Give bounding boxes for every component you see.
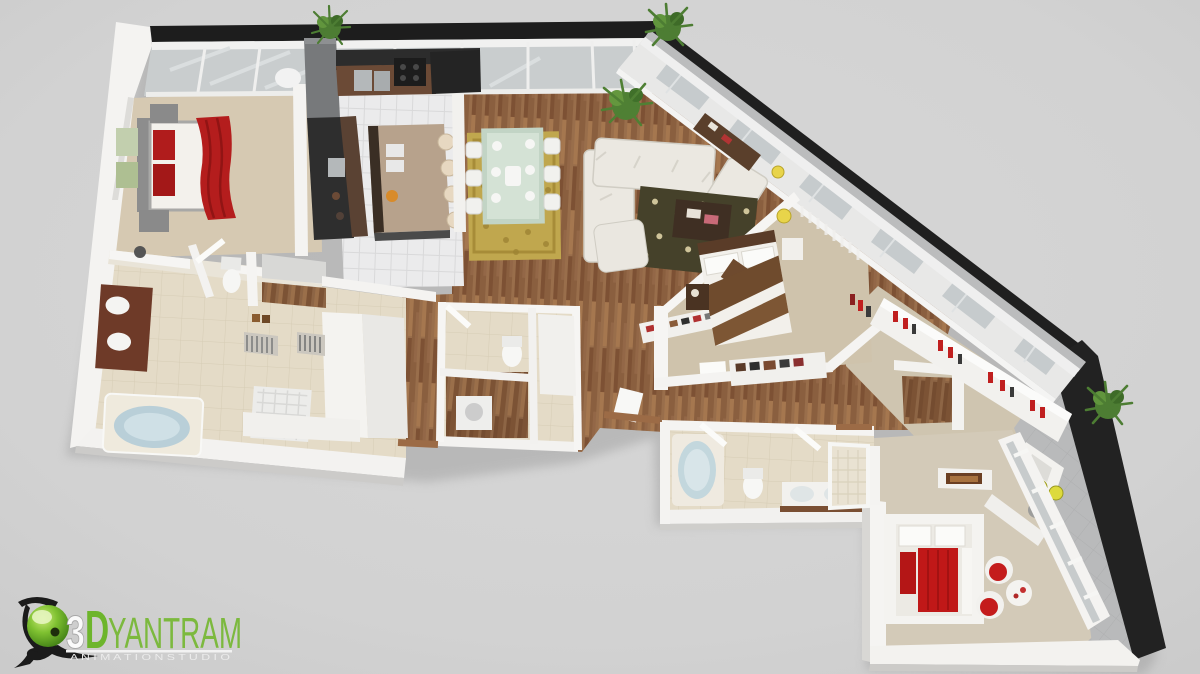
svg-text:A N I M A T I O N S T U D I: A N I M A T I O N S T U D I O (70, 653, 230, 662)
